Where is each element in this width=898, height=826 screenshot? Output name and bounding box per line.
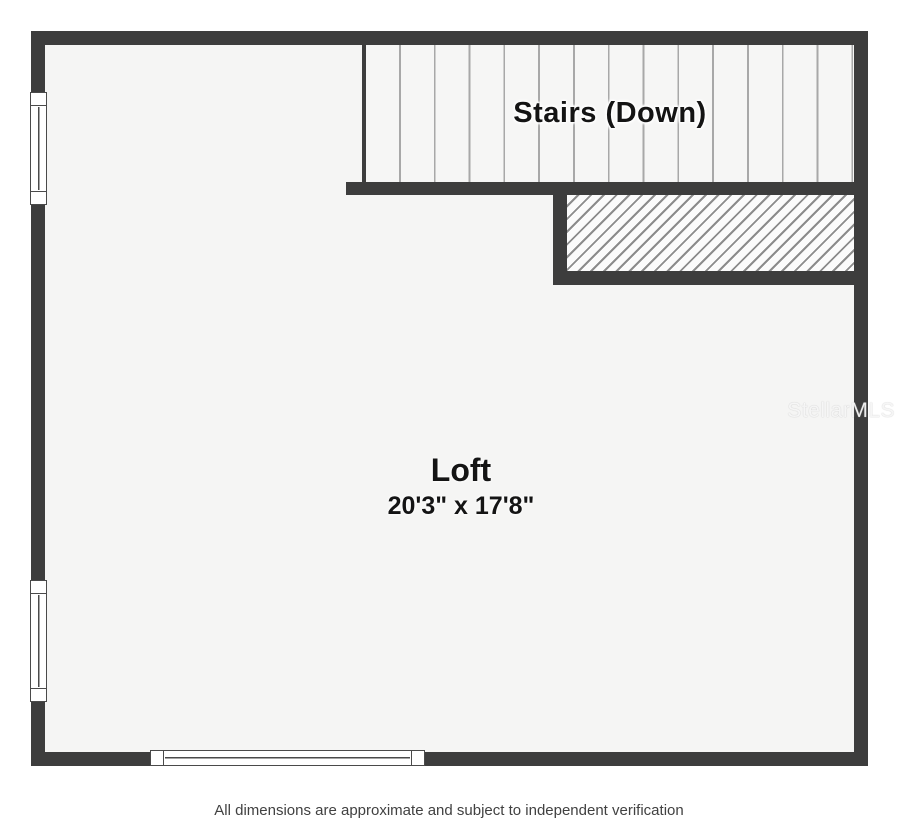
stair-bottom-wall [346, 182, 868, 195]
staircase: Stairs (Down) [362, 45, 854, 182]
room-label: Loft 20'3" x 17'8" [311, 450, 611, 522]
room-dimensions: 20'3" x 17'8" [311, 490, 611, 522]
floorplan-image: Stairs (Down) Loft 20'3" x 17'8" Stellar… [0, 0, 898, 826]
watermark: StellarMLS [787, 399, 895, 423]
window-left-lower [30, 580, 47, 702]
window-bottom [150, 750, 425, 766]
hatch-bottom-wall [553, 271, 854, 285]
room-name: Loft [311, 450, 611, 490]
disclaimer-text: All dimensions are approximate and subje… [0, 802, 898, 819]
stairs-label: Stairs (Down) [513, 97, 706, 130]
window-left-upper [30, 92, 47, 205]
open-below-hatched-area [567, 195, 854, 271]
